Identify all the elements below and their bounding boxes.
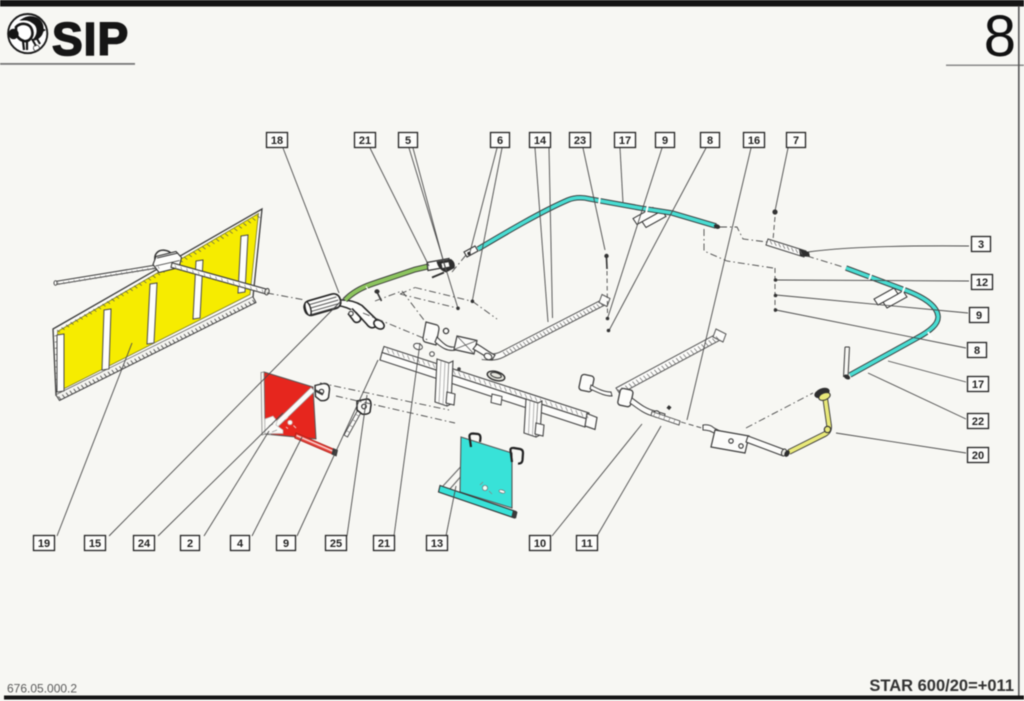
svg-text:9: 9 (662, 135, 668, 147)
svg-text:676.05.000.2: 676.05.000.2 (7, 682, 77, 696)
svg-text:14: 14 (534, 135, 547, 147)
svg-text:18: 18 (271, 135, 283, 147)
svg-text:11: 11 (581, 538, 593, 550)
svg-text:7: 7 (793, 135, 799, 147)
svg-text:9: 9 (976, 310, 982, 322)
svg-text:21: 21 (378, 538, 390, 550)
svg-text:4: 4 (237, 538, 244, 550)
svg-text:SIP: SIP (52, 13, 129, 65)
svg-text:8: 8 (974, 345, 980, 357)
svg-text:12: 12 (976, 277, 988, 289)
svg-text:8: 8 (984, 4, 1016, 69)
svg-text:8: 8 (707, 135, 713, 147)
svg-text:23: 23 (574, 135, 586, 147)
svg-text:15: 15 (89, 538, 101, 550)
svg-text:16: 16 (748, 135, 760, 147)
svg-text:5: 5 (405, 135, 411, 147)
svg-text:17: 17 (619, 135, 631, 147)
svg-text:13: 13 (431, 538, 443, 550)
svg-text:19: 19 (38, 538, 50, 550)
svg-text:20: 20 (972, 450, 984, 462)
svg-text:25: 25 (330, 538, 342, 550)
svg-text:22: 22 (972, 416, 984, 428)
svg-text:2: 2 (187, 538, 193, 550)
svg-text:6: 6 (497, 135, 503, 147)
svg-text:24: 24 (138, 538, 151, 550)
svg-text:17: 17 (972, 379, 984, 391)
svg-text:10: 10 (534, 538, 546, 550)
svg-text:STAR 600/20=+011: STAR 600/20=+011 (869, 677, 1014, 695)
svg-text:3: 3 (978, 239, 984, 251)
svg-text:9: 9 (283, 538, 289, 550)
svg-text:21: 21 (359, 135, 371, 147)
